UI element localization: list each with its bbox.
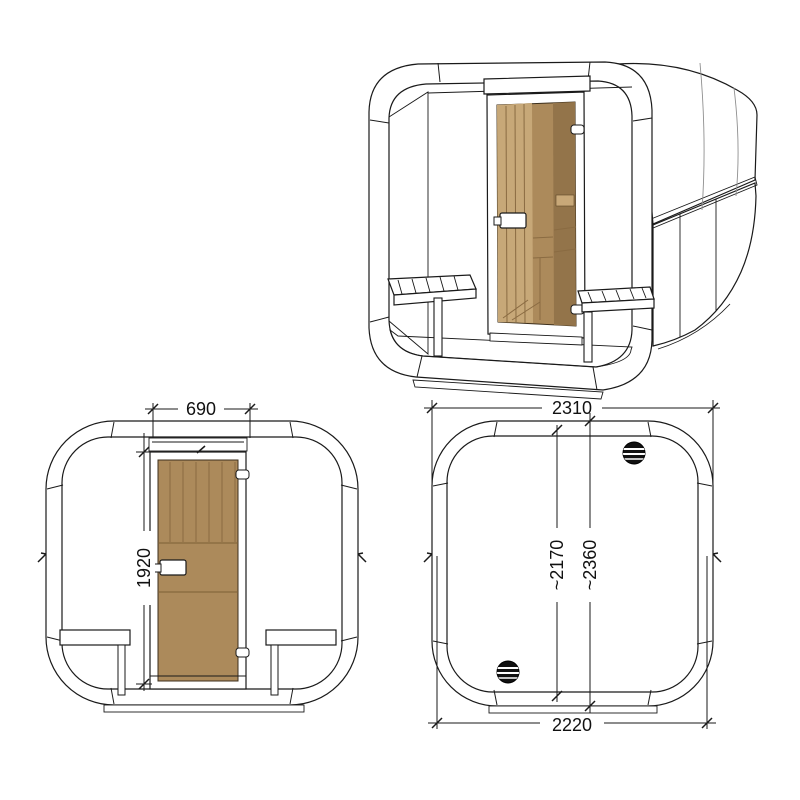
door-handle	[160, 560, 186, 575]
side-wall-seams	[680, 165, 716, 345]
roof-seam	[734, 88, 738, 196]
bench-right	[266, 630, 336, 645]
center-mark-left	[38, 553, 46, 562]
dim-base-width-label: 2220	[552, 715, 592, 735]
center-mark-right	[358, 553, 366, 562]
sauna-drawing-canvas: 690 1920	[0, 0, 800, 800]
rear-outer-frame	[432, 421, 713, 706]
base-strip	[489, 706, 657, 713]
dim-overall-height-label: ~2360	[580, 540, 600, 591]
door-handle-mount	[154, 564, 161, 572]
bench-left-leg	[434, 298, 442, 356]
bench-right-leg	[584, 312, 592, 362]
door-transom-3d	[484, 76, 590, 94]
door-front	[150, 452, 249, 689]
door-3d	[487, 92, 585, 338]
dim-door-height-label: 1920	[134, 548, 154, 588]
center-mark-right	[713, 553, 721, 562]
bench-left-leg	[118, 645, 125, 695]
side-wall	[653, 183, 756, 346]
perspective-view	[369, 62, 757, 399]
base-strip	[104, 705, 304, 712]
dim-door-width-label: 690	[186, 399, 216, 419]
interior-shelf	[556, 195, 574, 206]
door-transom	[149, 438, 247, 451]
door-glass-open-gap	[553, 102, 576, 326]
door-hinge-bottom	[236, 648, 249, 657]
rear-elevation-view: 2310 2220 ~2170 ~2360	[424, 398, 721, 735]
dim-inner-height-label: ~2170	[547, 540, 567, 591]
door-hinge-top-3d	[571, 125, 584, 134]
center-mark-left	[424, 553, 432, 562]
dim-overall-width-label: 2310	[552, 398, 592, 418]
side-base-edge	[658, 304, 730, 349]
door-handle-3d	[500, 213, 526, 228]
roof-seam	[700, 63, 704, 210]
bench-left	[60, 630, 130, 645]
technical-drawing-sheet: 690 1920	[0, 0, 800, 800]
bench-right-leg	[271, 645, 278, 695]
door-hinge-top	[236, 470, 249, 479]
door-handle-mount-3d	[494, 217, 501, 225]
front-elevation-view: 690 1920	[38, 399, 366, 712]
